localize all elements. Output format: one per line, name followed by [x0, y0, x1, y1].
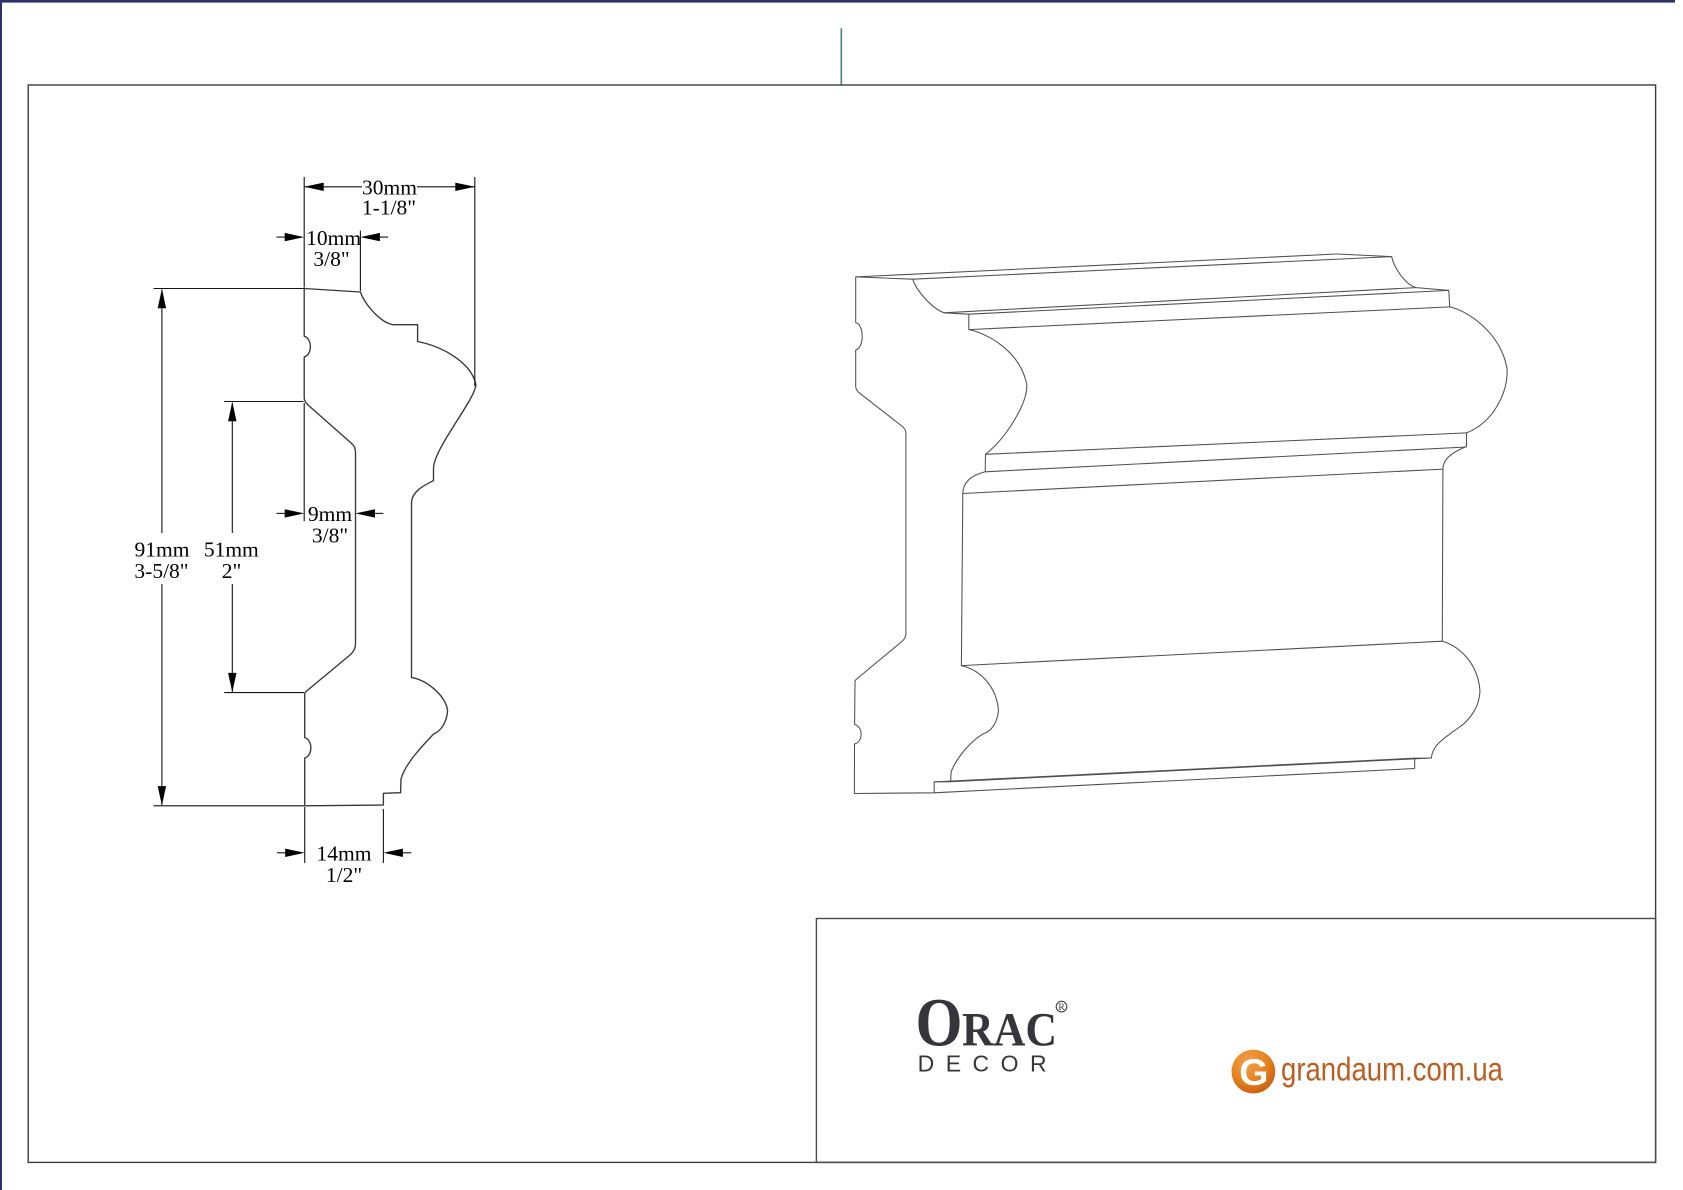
svg-text:3/8": 3/8": [312, 523, 348, 547]
svg-text:51mm: 51mm: [204, 538, 259, 562]
svg-text:91mm: 91mm: [135, 538, 190, 562]
svg-text:G: G: [1239, 1051, 1268, 1093]
svg-text:3-5/8": 3-5/8": [134, 559, 188, 583]
svg-text:3/8": 3/8": [313, 247, 349, 271]
svg-text:grandaum.com.ua: grandaum.com.ua: [1281, 1051, 1503, 1088]
svg-text:2": 2": [222, 559, 242, 583]
svg-text:1/2": 1/2": [326, 863, 362, 887]
svg-text:1-1/8": 1-1/8": [362, 196, 416, 220]
svg-text:R: R: [1058, 1003, 1065, 1013]
svg-text:DECOR: DECOR: [918, 1051, 1059, 1077]
svg-text:RAC: RAC: [962, 1004, 1057, 1057]
svg-text:O: O: [916, 985, 963, 1061]
